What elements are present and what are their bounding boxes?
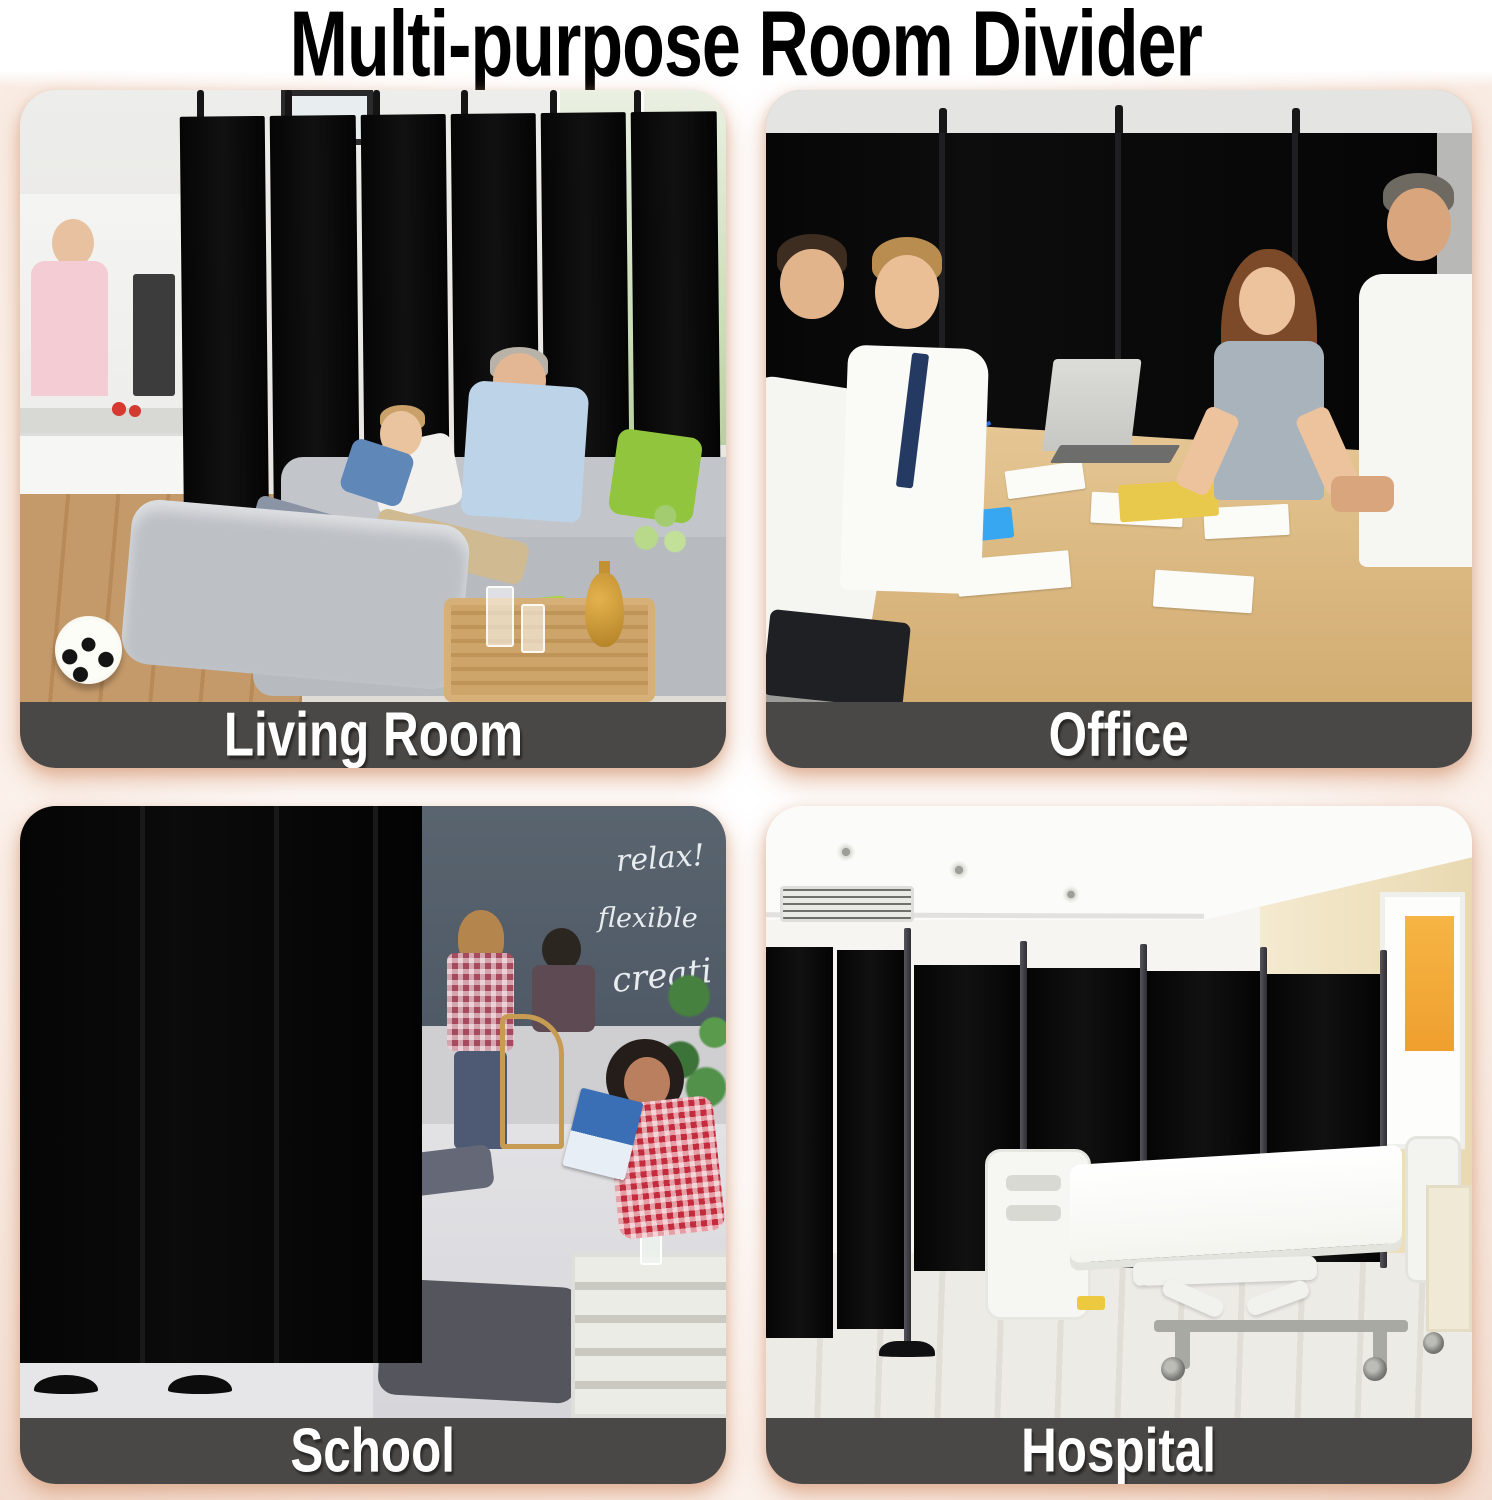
yellow-accent [1077,1296,1105,1311]
divider-panel [180,116,270,557]
chalk-word: flexible [598,903,698,934]
white-crate-table [571,1253,726,1418]
scene-grid: Living Room [0,88,1492,1484]
divider-seam [373,806,378,1363]
divider-seam [274,806,279,1363]
water-glass [486,586,514,647]
scene-card-hospital: Hospital [766,806,1472,1484]
scene-card-office: Office [766,90,1472,768]
page-title: Multi-purpose Room Divider [290,0,1202,97]
divider-panel [766,947,833,1339]
divider-pole [1115,105,1123,136]
divider-foot [168,1375,232,1393]
caption-office: Office [766,702,1472,768]
title-bar: Multi-purpose Room Divider [0,0,1492,88]
soccer-ball [55,616,122,683]
chart-sheet [1153,570,1254,614]
kitchen-appliance [133,274,175,396]
caption-living-room: Living Room [20,702,726,768]
man-center-head [875,255,939,328]
laptop-screen [1043,359,1143,451]
hospital-photo [766,806,1472,1418]
bed-wheel [1423,1332,1444,1354]
product-collage: Multi-purpose Room Divider [0,0,1492,1484]
woman-head [52,219,94,268]
caption-label: School [291,1415,456,1484]
man-right-shirt [1359,274,1472,568]
door-orange-panel [1405,916,1454,1051]
water-glass [521,604,545,653]
ac-vent [780,886,914,923]
sofa-chaise [119,498,471,692]
man-right-hands [1331,476,1395,513]
living-room-photo [20,90,726,702]
bedside-cabinet [1426,1185,1472,1332]
tomato [112,402,126,415]
woman-pink-sweater [31,261,109,396]
chalk-word: relax! [615,838,706,879]
caption-label: Hospital [1022,1415,1217,1484]
laptop-base [1050,445,1181,463]
headboard-slot [1006,1175,1061,1192]
school-photo: relax! flexible creati [20,806,726,1418]
recessed-light [837,843,855,861]
green-plant-sprig [627,494,691,567]
bed-wheel [1363,1357,1387,1381]
bed-mattress [1070,1145,1402,1263]
woman-head [1239,267,1295,334]
caption-school: School [20,1418,726,1484]
office-photo [766,90,1472,702]
divider-foot [34,1375,98,1393]
recessed-light [1063,886,1080,903]
divider-pole [904,928,911,1344]
bed-frame [1154,1320,1408,1332]
divider-panel [837,950,905,1329]
divider-foot [879,1341,935,1357]
scene-card-living-room: Living Room [20,90,726,768]
man-right-head [1387,188,1451,261]
gold-vase [585,573,624,646]
man-left-head [780,249,844,319]
caption-hospital: Hospital [766,1418,1472,1484]
caption-label: Office [1049,699,1189,768]
scene-card-school: relax! flexible creati [20,806,726,1484]
divider-seam [140,806,145,1363]
man-left-trousers [766,609,911,702]
caption-label: Living Room [223,699,522,768]
room-divider [20,806,422,1363]
man-blue-shirt [460,380,589,523]
wooden-chair [500,1014,564,1149]
headboard-slot [1006,1205,1061,1222]
